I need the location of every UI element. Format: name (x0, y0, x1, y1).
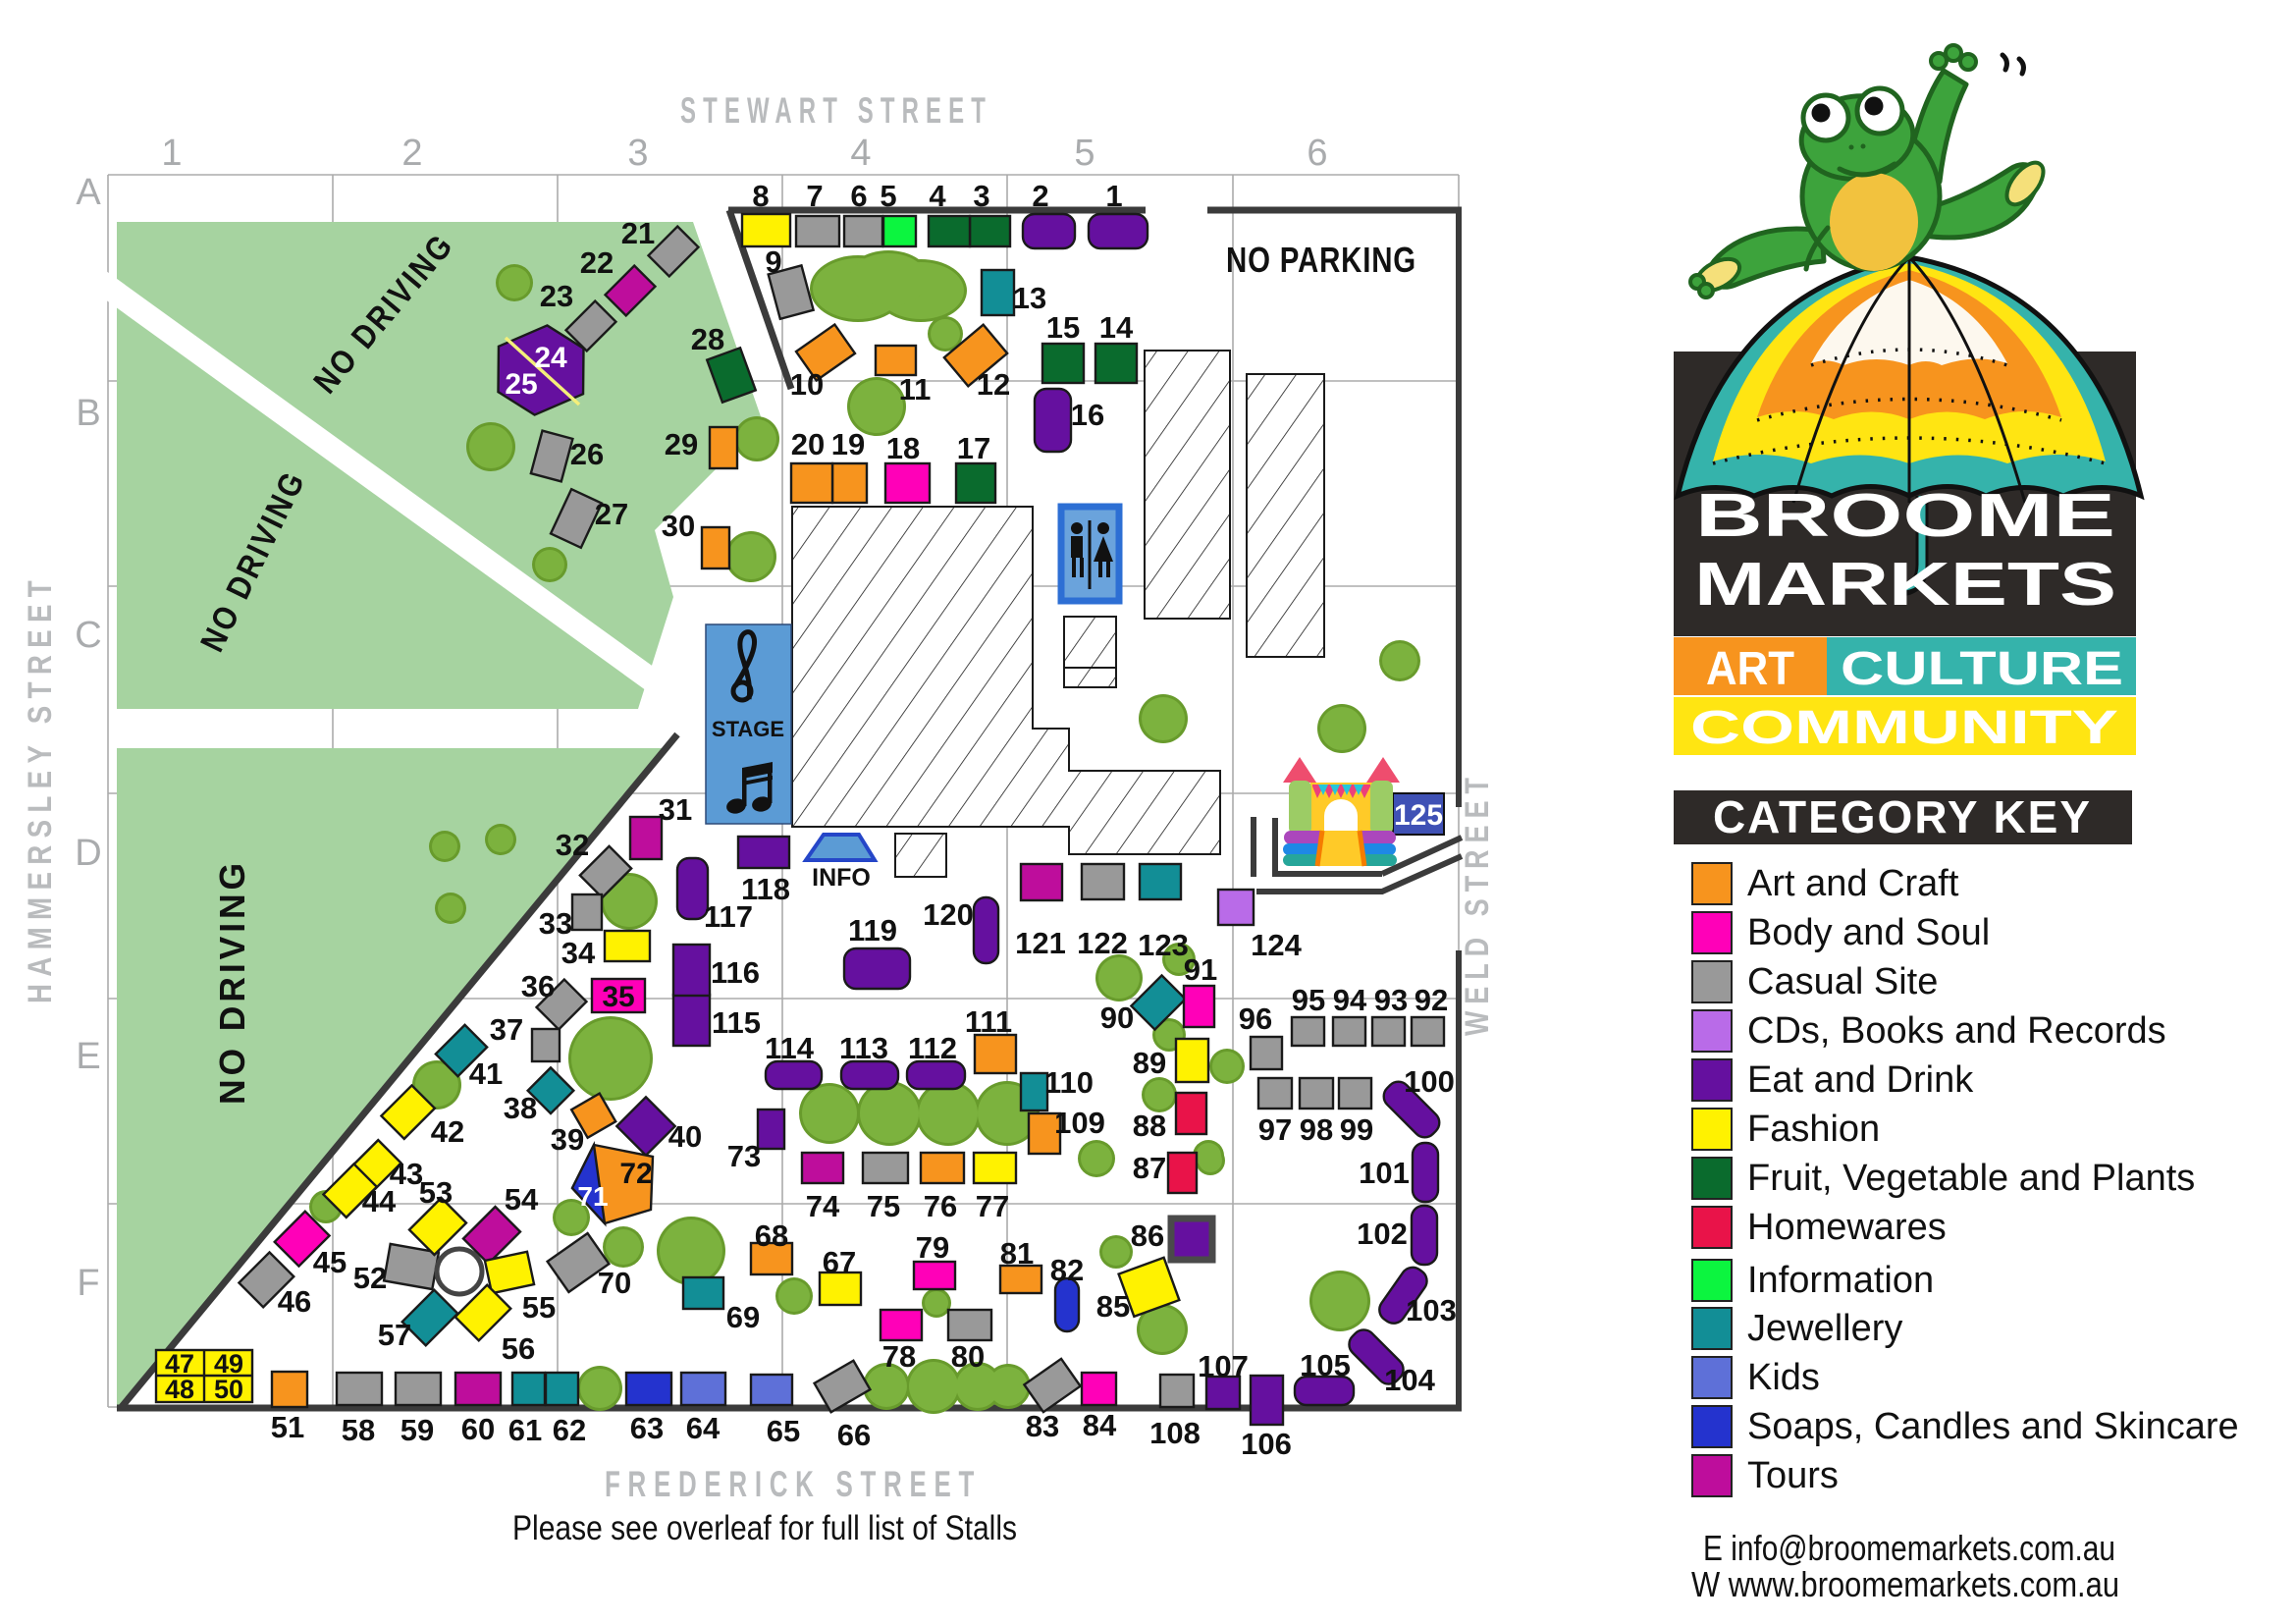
svg-text:87: 87 (1133, 1151, 1166, 1185)
svg-text:70: 70 (598, 1266, 631, 1300)
svg-text:98: 98 (1300, 1112, 1333, 1147)
svg-text:Please see overleaf for full l: Please see overleaf for full list of Sta… (512, 1509, 1017, 1547)
svg-text:75: 75 (867, 1189, 900, 1223)
svg-text:CATEGORY KEY: CATEGORY KEY (1713, 791, 2092, 842)
svg-text:12: 12 (977, 367, 1010, 402)
svg-text:3: 3 (627, 133, 648, 174)
svg-text:79: 79 (916, 1230, 949, 1265)
svg-text:84: 84 (1083, 1408, 1117, 1442)
svg-text:INFO: INFO (812, 864, 871, 892)
svg-text:83: 83 (1026, 1409, 1059, 1443)
svg-text:82: 82 (1050, 1253, 1084, 1287)
svg-text:40: 40 (668, 1119, 702, 1154)
svg-text:CDs, Books and Records: CDs, Books and Records (1747, 1010, 2166, 1052)
svg-text:102: 102 (1357, 1217, 1408, 1251)
svg-text:23: 23 (540, 279, 573, 313)
svg-text:Soaps, Candles and Skincare: Soaps, Candles and Skincare (1747, 1406, 2239, 1447)
svg-text:72: 72 (619, 1158, 652, 1190)
svg-text:15: 15 (1046, 310, 1080, 345)
svg-text:113: 113 (839, 1031, 888, 1065)
svg-text:56: 56 (502, 1331, 535, 1366)
svg-text:58: 58 (342, 1413, 375, 1447)
svg-text:55: 55 (522, 1290, 556, 1325)
svg-text:2: 2 (1032, 179, 1048, 213)
svg-text:59: 59 (400, 1413, 434, 1447)
svg-text:6: 6 (850, 179, 867, 213)
svg-text:124: 124 (1251, 928, 1302, 962)
svg-text:D: D (75, 833, 101, 874)
svg-text:115: 115 (712, 1005, 761, 1040)
svg-text:11: 11 (899, 372, 932, 406)
svg-text:Fashion: Fashion (1747, 1109, 1880, 1150)
svg-text:W www.broomemarkets.com.au: W www.broomemarkets.com.au (1691, 1564, 2119, 1604)
svg-text:18: 18 (886, 431, 920, 465)
svg-text:16: 16 (1071, 398, 1104, 432)
svg-text:76: 76 (924, 1189, 957, 1223)
svg-text:60: 60 (461, 1412, 495, 1446)
svg-text:WELD STREET: WELD STREET (1459, 771, 1496, 1036)
svg-text:110: 110 (1044, 1065, 1094, 1100)
svg-text:71: 71 (577, 1181, 608, 1212)
svg-text:112: 112 (908, 1031, 957, 1065)
svg-text:19: 19 (831, 427, 865, 461)
svg-text:46: 46 (278, 1284, 311, 1319)
svg-text:36: 36 (521, 969, 555, 1003)
svg-text:34: 34 (561, 936, 596, 970)
svg-text:31: 31 (659, 792, 692, 827)
svg-text:A: A (76, 172, 101, 213)
svg-text:103: 103 (1406, 1293, 1457, 1327)
svg-text:20: 20 (791, 427, 825, 461)
svg-text:57: 57 (378, 1318, 411, 1352)
svg-text:111: 111 (965, 1004, 1012, 1039)
svg-text:120: 120 (923, 897, 974, 932)
svg-text:9: 9 (765, 244, 781, 279)
svg-text:7: 7 (806, 179, 823, 213)
svg-text:B: B (76, 393, 100, 434)
svg-text:37: 37 (490, 1012, 523, 1047)
svg-text:Information: Information (1747, 1260, 1934, 1301)
svg-text:COMMUNITY: COMMUNITY (1690, 702, 2118, 754)
svg-text:27: 27 (595, 497, 628, 531)
svg-text:ART: ART (1706, 643, 1794, 695)
svg-text:C: C (75, 615, 101, 656)
svg-text:CULTURE: CULTURE (1841, 643, 2123, 695)
svg-text:35: 35 (602, 981, 634, 1013)
svg-text:91: 91 (1184, 952, 1217, 987)
svg-text:Eat and Drink: Eat and Drink (1747, 1059, 1974, 1101)
svg-text:81: 81 (1000, 1236, 1034, 1271)
svg-text:77: 77 (976, 1189, 1009, 1223)
svg-text:93: 93 (1374, 983, 1408, 1017)
svg-text:Body and Soul: Body and Soul (1747, 912, 1990, 953)
svg-text:54: 54 (505, 1182, 539, 1217)
svg-text:108: 108 (1149, 1416, 1201, 1450)
svg-text:90: 90 (1100, 1001, 1134, 1035)
svg-text:52: 52 (353, 1261, 387, 1295)
svg-text:68: 68 (755, 1218, 788, 1253)
svg-text:48: 48 (165, 1375, 194, 1404)
svg-text:38: 38 (504, 1091, 537, 1125)
svg-text:78: 78 (882, 1339, 916, 1374)
svg-text:E: E (76, 1036, 100, 1077)
svg-text:5: 5 (1074, 133, 1095, 174)
svg-text:109: 109 (1054, 1106, 1105, 1140)
svg-text:69: 69 (726, 1300, 760, 1334)
svg-text:107: 107 (1198, 1349, 1249, 1383)
svg-text:Casual Site: Casual Site (1747, 961, 1938, 1002)
svg-text:21: 21 (621, 216, 655, 250)
svg-text:39: 39 (551, 1122, 584, 1157)
svg-text:99: 99 (1340, 1112, 1373, 1147)
svg-text:86: 86 (1131, 1218, 1164, 1253)
svg-text:89: 89 (1133, 1046, 1166, 1080)
svg-text:3: 3 (973, 179, 989, 213)
svg-text:53: 53 (419, 1175, 453, 1210)
svg-text:NO DRIVING: NO DRIVING (212, 859, 252, 1105)
svg-text:FREDERICK STREET: FREDERICK STREET (605, 1464, 982, 1504)
svg-text:105: 105 (1300, 1348, 1351, 1382)
svg-text:73: 73 (727, 1139, 761, 1173)
svg-text:106: 106 (1241, 1427, 1292, 1461)
svg-text:1: 1 (1105, 179, 1122, 213)
svg-text:14: 14 (1099, 310, 1134, 345)
svg-text:66: 66 (837, 1418, 871, 1452)
svg-text:74: 74 (806, 1189, 840, 1223)
svg-text:STAGE: STAGE (712, 717, 784, 741)
svg-text:100: 100 (1404, 1064, 1455, 1099)
svg-text:95: 95 (1292, 983, 1325, 1017)
svg-text:Kids: Kids (1747, 1357, 1820, 1398)
svg-text:61: 61 (508, 1413, 542, 1447)
svg-text:51: 51 (271, 1410, 304, 1444)
svg-text:101: 101 (1359, 1156, 1410, 1190)
svg-text:125: 125 (1394, 799, 1443, 832)
svg-text:45: 45 (313, 1245, 347, 1279)
svg-text:67: 67 (823, 1245, 856, 1279)
svg-text:42: 42 (431, 1114, 464, 1149)
svg-text:96: 96 (1239, 1001, 1272, 1036)
svg-text:25: 25 (505, 368, 537, 401)
svg-text:HAMMERSLEY STREET: HAMMERSLEY STREET (22, 573, 59, 1003)
svg-text:4: 4 (929, 179, 946, 213)
svg-text:22: 22 (580, 245, 614, 280)
svg-text:50: 50 (214, 1375, 243, 1404)
svg-text:97: 97 (1258, 1112, 1292, 1147)
svg-text:64: 64 (686, 1411, 721, 1445)
svg-text:28: 28 (691, 322, 724, 356)
svg-text:17: 17 (957, 431, 990, 465)
svg-text:118: 118 (741, 872, 790, 906)
svg-text:BROOME: BROOME (1695, 482, 2115, 550)
svg-text:6: 6 (1307, 133, 1327, 174)
svg-text:2: 2 (401, 133, 422, 174)
svg-text:26: 26 (570, 437, 604, 471)
svg-text:5: 5 (880, 179, 896, 213)
svg-text:122: 122 (1077, 926, 1128, 960)
svg-text:F: F (77, 1263, 99, 1304)
svg-text:29: 29 (665, 427, 698, 461)
svg-text:Art and Craft: Art and Craft (1747, 863, 1959, 904)
svg-text:STEWART STREET: STEWART STREET (680, 90, 992, 131)
svg-text:E info@broomemarkets.com.au: E info@broomemarkets.com.au (1703, 1528, 2115, 1568)
svg-text:NO PARKING: NO PARKING (1226, 240, 1416, 280)
svg-text:4: 4 (850, 133, 871, 174)
svg-text:123: 123 (1138, 928, 1189, 962)
svg-text:30: 30 (662, 509, 695, 543)
svg-text:114: 114 (765, 1031, 815, 1065)
svg-text:119: 119 (848, 913, 897, 947)
svg-text:88: 88 (1133, 1109, 1166, 1143)
svg-text:Homewares: Homewares (1747, 1207, 1947, 1248)
svg-text:121: 121 (1015, 926, 1066, 960)
svg-text:1: 1 (161, 133, 182, 174)
svg-text:13: 13 (1013, 281, 1046, 315)
svg-text:63: 63 (630, 1411, 664, 1445)
svg-text:65: 65 (767, 1414, 800, 1448)
svg-text:44: 44 (362, 1184, 397, 1218)
svg-text:104: 104 (1384, 1363, 1435, 1397)
svg-text:Tours: Tours (1747, 1455, 1839, 1496)
svg-text:24: 24 (534, 342, 567, 374)
svg-text:94: 94 (1333, 983, 1367, 1017)
svg-text:10: 10 (790, 367, 824, 402)
svg-text:62: 62 (553, 1413, 586, 1447)
svg-text:32: 32 (556, 828, 589, 862)
svg-text:41: 41 (469, 1056, 503, 1091)
svg-text:Fruit, Vegetable and Plants: Fruit, Vegetable and Plants (1747, 1158, 2195, 1199)
svg-text:85: 85 (1096, 1289, 1130, 1324)
svg-text:80: 80 (951, 1339, 985, 1374)
svg-text:8: 8 (752, 179, 769, 213)
svg-text:MARKETS: MARKETS (1694, 551, 2116, 619)
svg-text:92: 92 (1415, 983, 1448, 1017)
svg-text:116: 116 (711, 955, 760, 990)
svg-text:Jewellery: Jewellery (1747, 1308, 1902, 1349)
